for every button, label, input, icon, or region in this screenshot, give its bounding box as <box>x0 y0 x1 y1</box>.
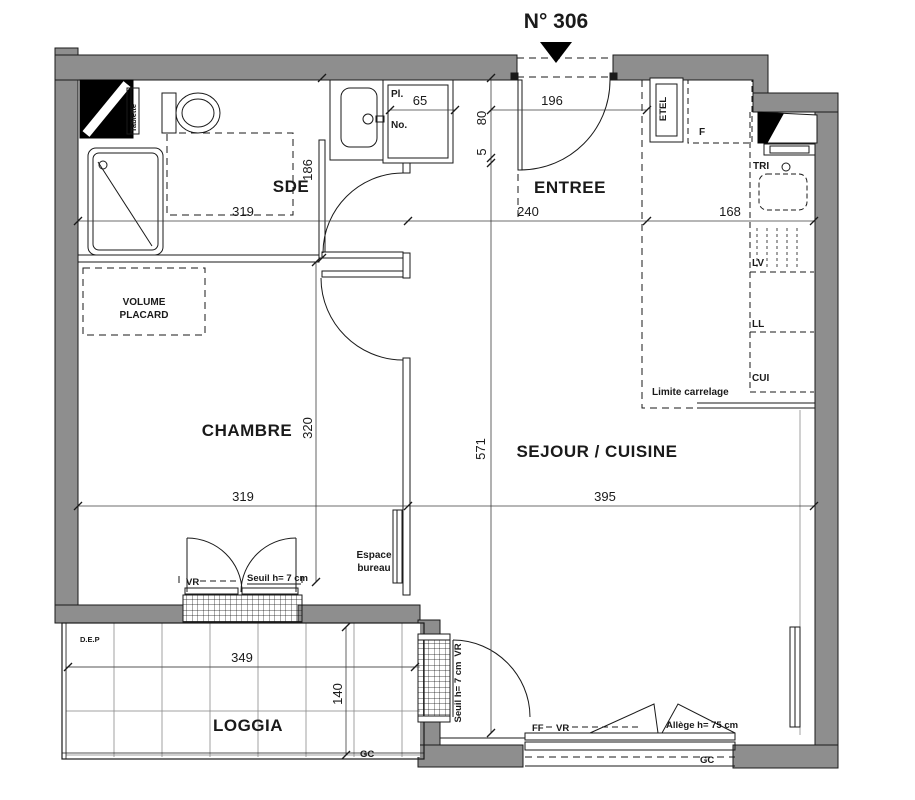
partition-chambre-sejour <box>403 358 410 595</box>
loggia-area <box>62 623 424 759</box>
fridge-box <box>688 80 752 143</box>
chambre-door-swing <box>321 278 403 360</box>
floor-plan-page: N° 306 SDE ENTREE CHAMBRE SEJOUR / CUISI… <box>0 0 915 800</box>
label-vr-sejour: VR <box>556 723 569 734</box>
label-no: No. <box>391 120 407 131</box>
kitchen-sink <box>759 174 807 210</box>
unit-number: N° 306 <box>524 10 588 33</box>
label-pl: Pl. <box>391 89 403 100</box>
label-seuil-loggia: Seuil h= 7 cm <box>453 662 464 723</box>
threshold-sejour-loggia <box>418 640 450 717</box>
dim-entry-width: 196 <box>541 93 563 108</box>
wall-top-right <box>613 55 768 95</box>
floor-plan: N° 306 SDE ENTREE CHAMBRE SEJOUR / CUISI… <box>0 0 915 800</box>
wall-top-left <box>55 55 517 80</box>
dim-kitchen-width: 168 <box>719 204 741 219</box>
dim-wall-80: 80 <box>474 111 489 125</box>
sde-zone <box>167 133 293 215</box>
label-tablette: Tablette <box>129 104 138 132</box>
loggia-tiles <box>66 623 420 757</box>
dim-loggia-width: 349 <box>231 650 253 665</box>
dim-chambre-depth: 320 <box>300 417 315 439</box>
room-label-sejour: SEJOUR / CUISINE <box>516 442 677 461</box>
label-vr-chambre: VR <box>186 577 199 588</box>
label-ll: LL <box>752 319 764 330</box>
basin-faucet <box>363 114 373 124</box>
entrance-arrow <box>540 42 572 63</box>
dim-chambre-width: 319 <box>232 489 254 504</box>
espace-bureau-unit <box>393 510 402 583</box>
wall-top-band-right <box>753 93 838 112</box>
dim-sde-depth: 186 <box>300 159 315 181</box>
entry-door-swing <box>520 80 610 170</box>
label-espace: Espace <box>356 550 391 561</box>
label-gc-sejour: GC <box>700 755 714 766</box>
label-gc-loggia: GC <box>360 749 374 760</box>
wall-loggia-corner <box>418 745 523 767</box>
wall-left <box>55 48 78 605</box>
label-seuil-chambre: Seuil h= 7 cm <box>247 573 308 584</box>
dim-wall-5: 5 <box>474 148 489 155</box>
wall-chambre-south-left <box>55 605 183 623</box>
sde-door-swing <box>323 173 403 253</box>
threshold-chambre-loggia <box>183 595 302 622</box>
label-etel: ETEL <box>658 97 669 121</box>
label-limite-carrelage: Limite carrelage <box>652 387 729 398</box>
label-placard: PLACARD <box>120 310 169 321</box>
dim-sejour-depth: 571 <box>473 438 488 460</box>
partition-sde-chambre <box>78 255 319 262</box>
dim-entree-width: 240 <box>517 204 539 219</box>
sink-faucet <box>782 163 790 171</box>
room-label-chambre: CHAMBRE <box>202 421 292 440</box>
label-ff: FF <box>532 723 544 734</box>
dim-sde-width: 319 <box>232 204 254 219</box>
label-bureau: bureau <box>357 563 390 574</box>
wall-bottom-right <box>733 745 838 768</box>
room-label-loggia: LOGGIA <box>213 716 283 735</box>
dim-placard-width: 65 <box>413 93 427 108</box>
label-tri: TRI <box>753 161 769 172</box>
dim-loggia-depth: 140 <box>330 683 345 705</box>
label-allege: Allège h= 75 cm <box>666 720 738 731</box>
room-label-entree: ENTREE <box>534 178 606 197</box>
kitchen-fixtures <box>650 78 817 735</box>
label-volume: VOLUME <box>123 297 166 308</box>
wc-tank <box>162 93 176 133</box>
wall-right <box>815 112 838 745</box>
washbasin <box>341 88 377 147</box>
label-dep: D.E.P <box>80 635 100 644</box>
wall-chambre-south-right <box>298 605 420 623</box>
loggia-door-swing <box>453 640 530 717</box>
dim-sejour-width: 395 <box>594 489 616 504</box>
label-vr-loggia: VR <box>453 643 464 656</box>
label-fridge: F <box>699 127 705 138</box>
entry-door-leaf <box>518 80 522 170</box>
label-lv: LV <box>752 258 764 269</box>
label-cui: CUI <box>752 373 769 384</box>
shower-diagonal <box>98 162 152 246</box>
